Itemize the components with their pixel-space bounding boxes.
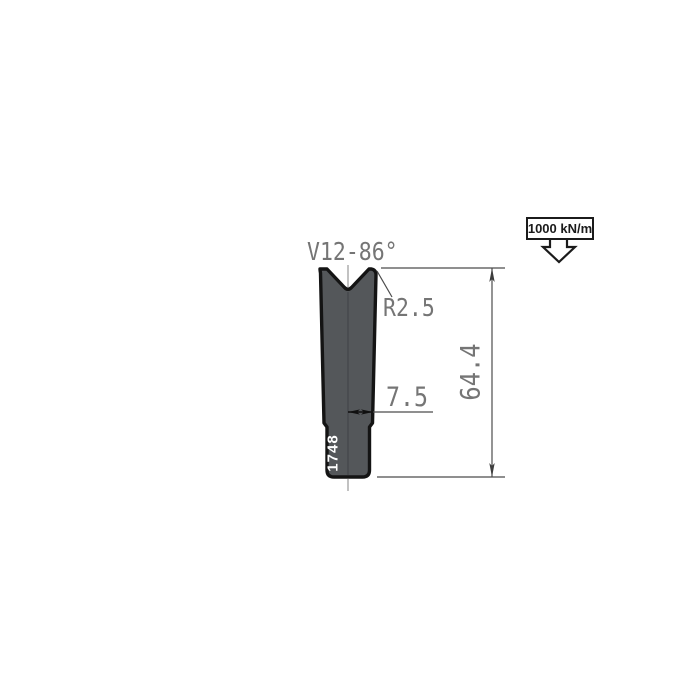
part-number-label: 1748 xyxy=(326,434,341,471)
force-rating-label: 1000 kN/m xyxy=(528,221,592,236)
technical-drawing-page: V12-86° R2.5 7.5 64.4 1748 1000 kN/m xyxy=(0,0,700,700)
shoulder-radius-label: R2.5 xyxy=(383,295,435,320)
half-width-label: 7.5 xyxy=(386,384,428,411)
total-height-label: 64.4 xyxy=(458,343,485,400)
force-rating-badge: 1000 kN/m xyxy=(526,217,594,240)
die-type-label: V12-86° xyxy=(307,239,398,264)
force-direction-arrow-icon xyxy=(543,239,575,262)
drawing-canvas xyxy=(0,0,700,700)
